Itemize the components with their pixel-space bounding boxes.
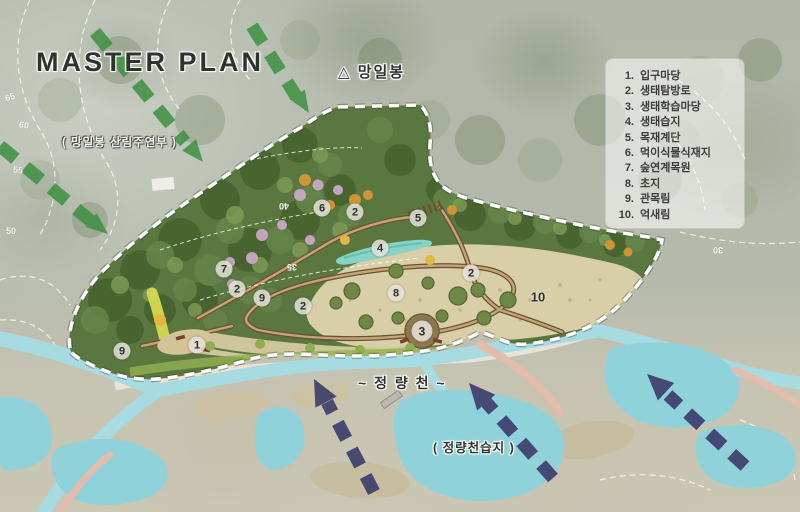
page-title: MASTER PLAN — [36, 47, 264, 78]
site-marker-4: 4 — [372, 240, 389, 257]
legend-item: 7.숲연계목원 — [610, 159, 738, 174]
legend-item-label: 생태습지 — [640, 113, 680, 129]
site-marker-1: 1 — [189, 337, 206, 354]
site-marker-5: 5 — [410, 210, 427, 227]
site-marker-7: 7 — [216, 261, 233, 278]
legend-item-number: 10. — [610, 209, 634, 221]
legend-item: 3.생태학습마당 — [610, 98, 738, 113]
site-marker-8: 8 — [388, 285, 405, 302]
legend-item: 6.먹이식물식재지 — [610, 144, 738, 159]
site-marker-10: 10 — [530, 289, 547, 306]
contour-label: 50 — [6, 226, 16, 236]
label-forest-edge: ( 망일봉 산림주연부 ) — [62, 134, 177, 150]
legend-item-number: 7. — [610, 162, 634, 174]
legend-item-label: 억새림 — [640, 206, 670, 222]
legend-item: 8.초지 — [610, 175, 738, 190]
legend-item-number: 4. — [610, 116, 634, 128]
legend-item-label: 관목림 — [640, 190, 670, 206]
contour-label: 40 — [279, 201, 289, 211]
legend-item-label: 생태학습마당 — [640, 98, 701, 114]
master-plan-canvas: MASTER PLAN △ 망일봉 ( 망일봉 산림주연부 ) ~ 정 량 천 … — [0, 0, 800, 512]
legend-item-number: 6. — [610, 147, 634, 159]
legend-item: 9.관목림 — [610, 190, 738, 205]
site-marker-3: 3 — [412, 321, 433, 342]
contour-label: 35 — [287, 262, 297, 272]
legend-item: 10.억새림 — [610, 206, 738, 221]
site-marker-2: 2 — [295, 298, 312, 315]
legend-list: 1.입구마당2.생태탐방로3.생태학습마당4.생태습지5.목재계단6.먹이식물식… — [610, 67, 738, 221]
legend-item-label: 숲연계목원 — [640, 159, 691, 175]
legend-panel: 1.입구마당2.생태탐방로3.생태학습마당4.생태습지5.목재계단6.먹이식물식… — [606, 59, 744, 228]
contour-label: 55 — [12, 164, 23, 175]
site-marker-2: 2 — [463, 265, 480, 282]
legend-item-number: 3. — [610, 101, 634, 113]
site-marker-6: 6 — [314, 200, 331, 217]
legend-item: 2.생태탐방로 — [610, 82, 738, 97]
legend-item-label: 먹이식물식재지 — [640, 144, 711, 160]
legend-item: 4.생태습지 — [610, 113, 738, 128]
label-jeongnyangcheon-wetland: ( 정량천습지 ) — [433, 437, 515, 456]
contour-label: 30 — [713, 245, 723, 255]
contour-label: 60 — [18, 119, 30, 131]
legend-item: 1.입구마당 — [610, 67, 738, 82]
site-marker-9: 9 — [254, 290, 271, 307]
site-marker-9: 9 — [114, 343, 131, 360]
legend-item-label: 초지 — [640, 175, 660, 191]
site-marker-2: 2 — [229, 281, 246, 298]
legend-item-number: 2. — [610, 85, 634, 97]
legend-item-label: 목재계단 — [640, 129, 680, 145]
legend-item: 5.목재계단 — [610, 129, 738, 144]
label-mangilbong-peak: △ 망일봉 — [338, 61, 405, 82]
site-marker-2: 2 — [347, 204, 364, 221]
legend-item-label: 입구마당 — [640, 67, 680, 83]
shed-roof — [152, 177, 175, 191]
legend-item-number: 8. — [610, 178, 634, 190]
legend-item-number: 1. — [610, 70, 634, 82]
legend-item-number: 5. — [610, 132, 634, 144]
label-jeongnyangcheon: ~ 정 량 천 ~ — [358, 373, 447, 393]
legend-item-number: 9. — [610, 193, 634, 205]
legend-item-label: 생태탐방로 — [640, 82, 691, 98]
